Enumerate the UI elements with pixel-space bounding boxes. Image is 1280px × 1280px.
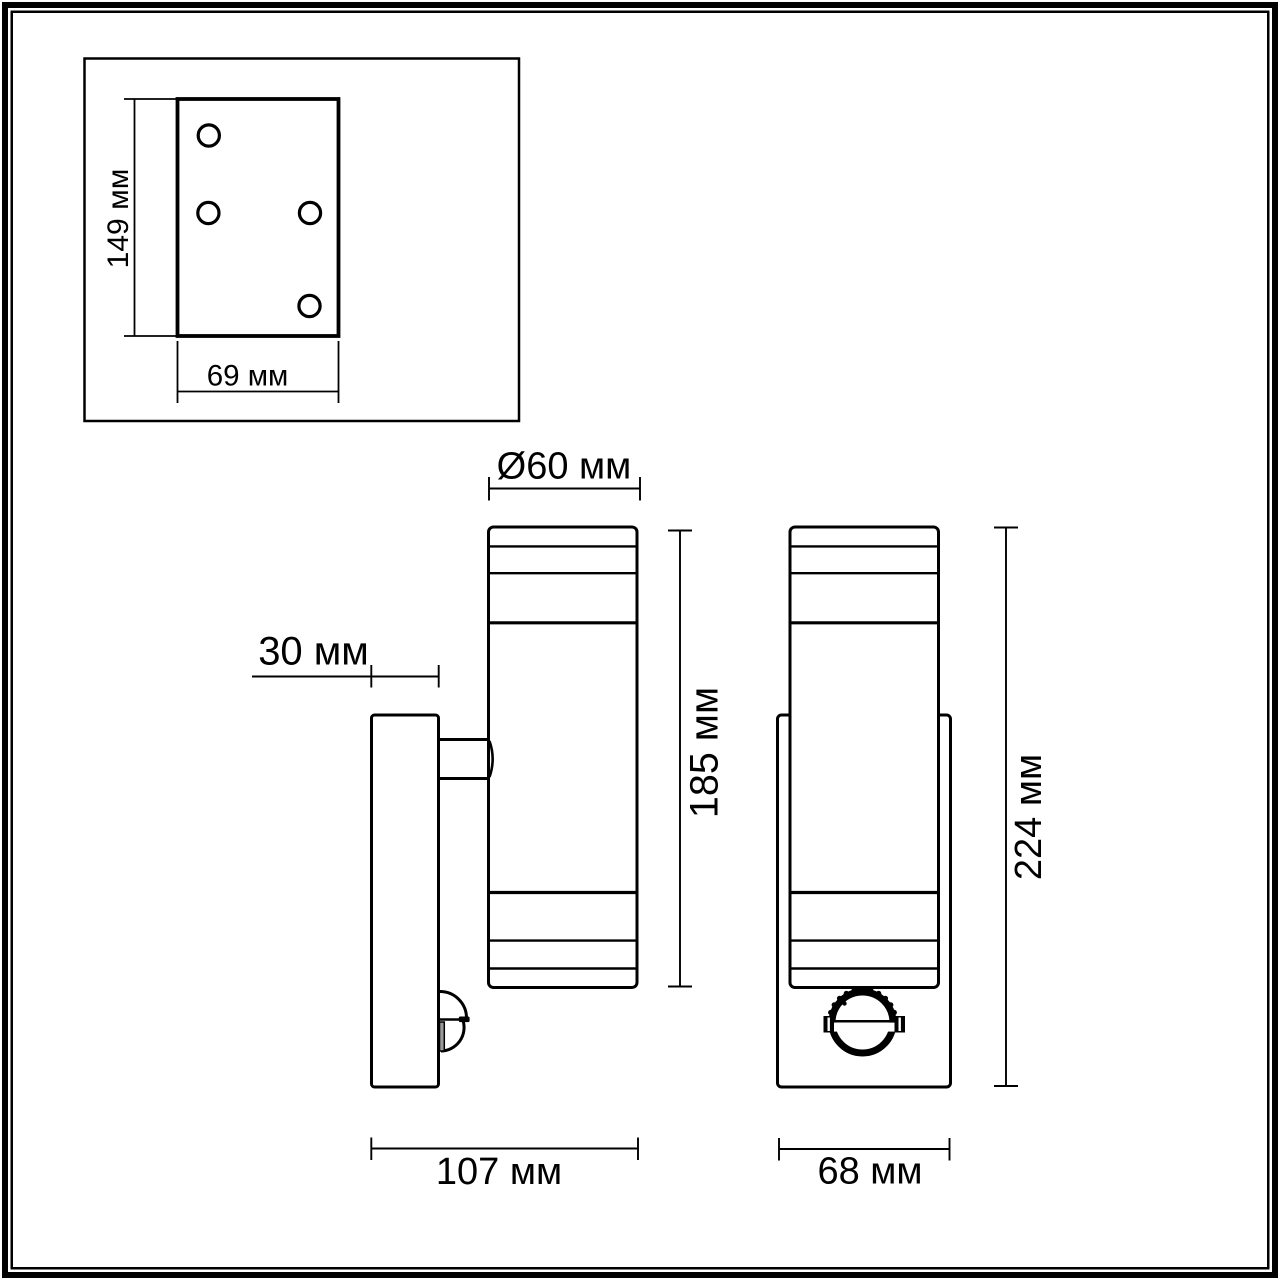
svg-text:69 мм: 69 мм	[207, 360, 289, 393]
svg-text:224 мм: 224 мм	[1008, 754, 1050, 880]
svg-text:30 мм: 30 мм	[258, 630, 369, 674]
svg-text:68 мм: 68 мм	[817, 1151, 922, 1193]
svg-text:Ø60 мм: Ø60 мм	[497, 446, 632, 488]
svg-text:185 мм: 185 мм	[683, 687, 727, 818]
svg-text:149 мм: 149 мм	[102, 169, 135, 269]
svg-text:107 мм: 107 мм	[436, 1151, 562, 1193]
